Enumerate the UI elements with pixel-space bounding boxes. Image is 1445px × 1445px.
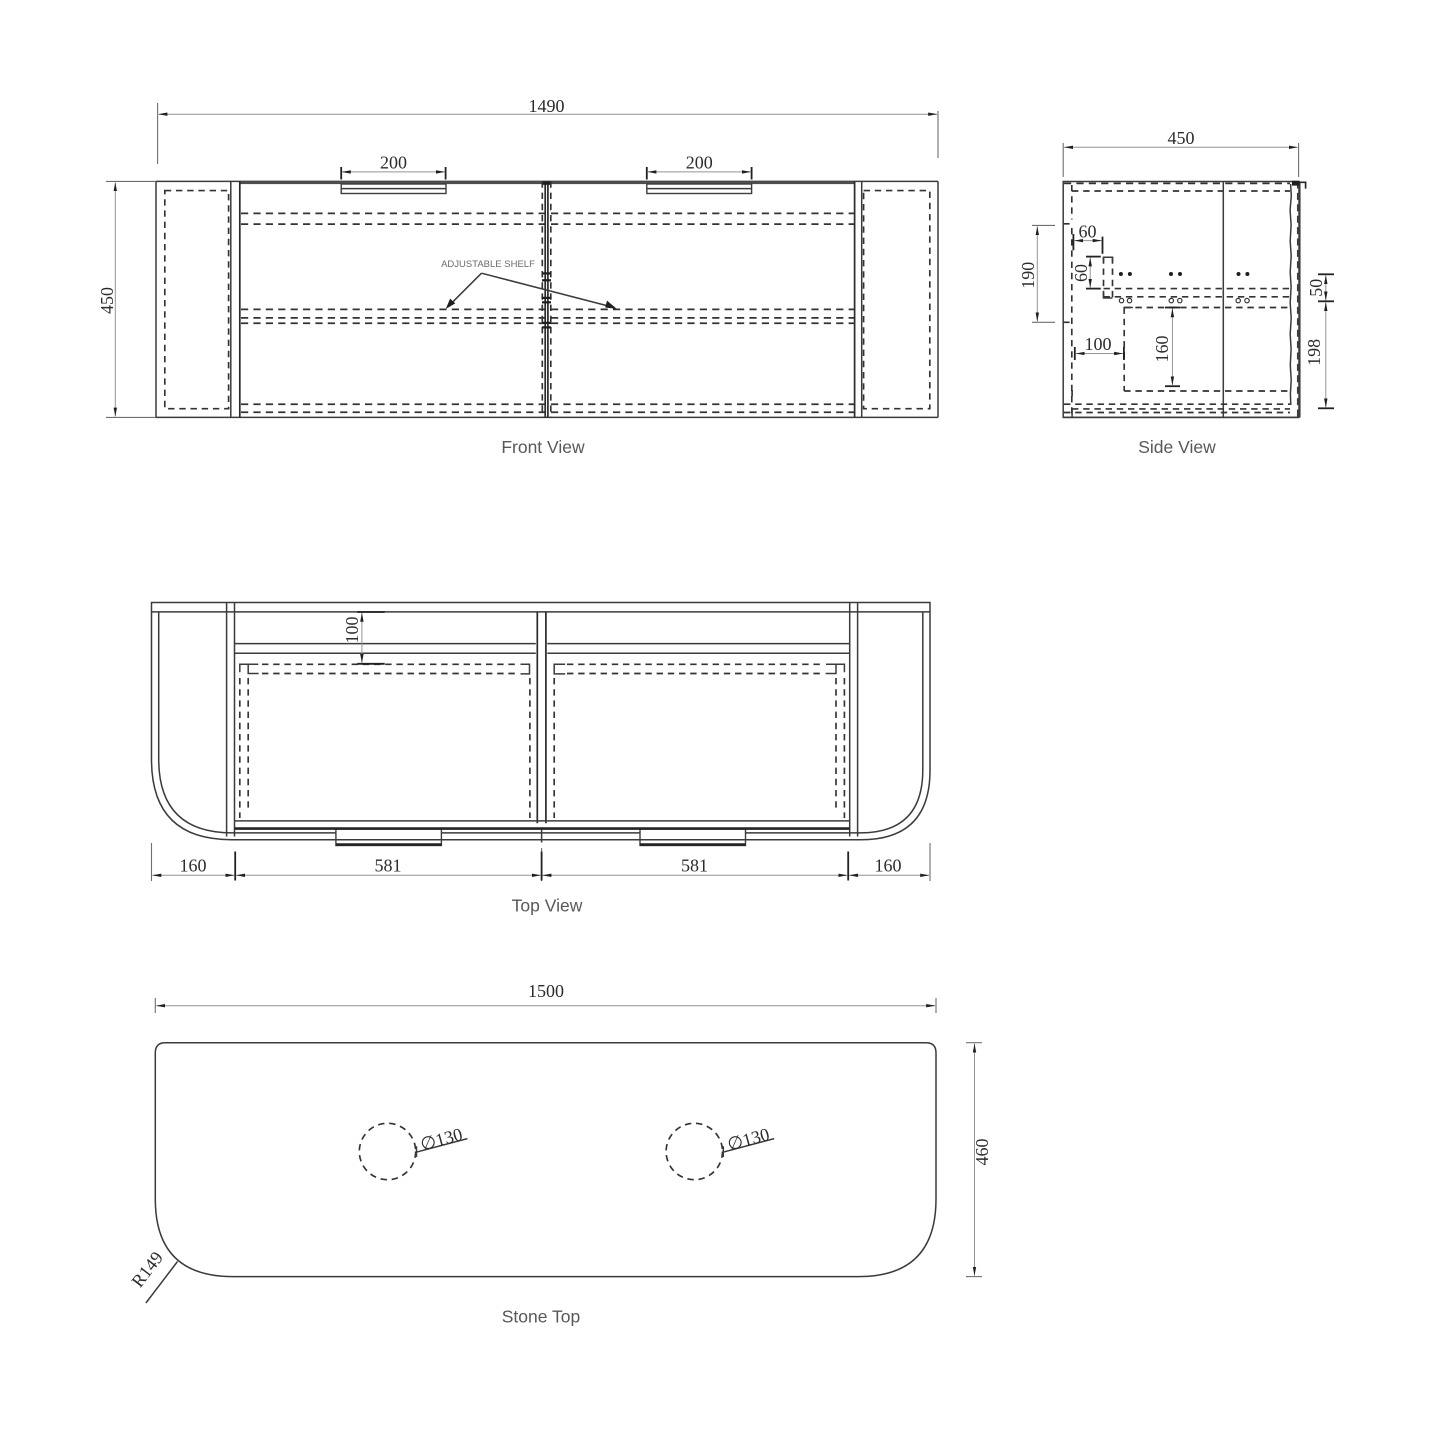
svg-text:450: 450	[97, 287, 117, 314]
svg-text:460: 460	[972, 1139, 992, 1166]
svg-text:1490: 1490	[529, 96, 565, 116]
svg-text:581: 581	[681, 856, 708, 876]
svg-text:Side View: Side View	[1138, 437, 1216, 457]
svg-text:Front View: Front View	[501, 437, 585, 457]
svg-text:60: 60	[1071, 264, 1091, 282]
svg-text:160: 160	[875, 856, 902, 876]
svg-text:160: 160	[180, 856, 207, 876]
svg-text:100: 100	[342, 617, 362, 644]
svg-text:190: 190	[1018, 262, 1038, 289]
svg-text:450: 450	[1168, 128, 1195, 148]
svg-text:100: 100	[1085, 334, 1112, 354]
svg-text:ADJUSTABLE SHELF: ADJUSTABLE SHELF	[441, 259, 535, 270]
svg-text:200: 200	[380, 153, 407, 173]
svg-text:200: 200	[686, 153, 713, 173]
svg-text:1500: 1500	[528, 981, 564, 1001]
svg-text:60: 60	[1079, 222, 1097, 242]
svg-text:Stone Top: Stone Top	[502, 1307, 581, 1327]
svg-text:198: 198	[1304, 339, 1324, 366]
svg-text:Top View: Top View	[512, 896, 583, 916]
svg-text:50: 50	[1306, 279, 1326, 297]
svg-text:160: 160	[1152, 336, 1172, 363]
svg-text:581: 581	[375, 856, 402, 876]
